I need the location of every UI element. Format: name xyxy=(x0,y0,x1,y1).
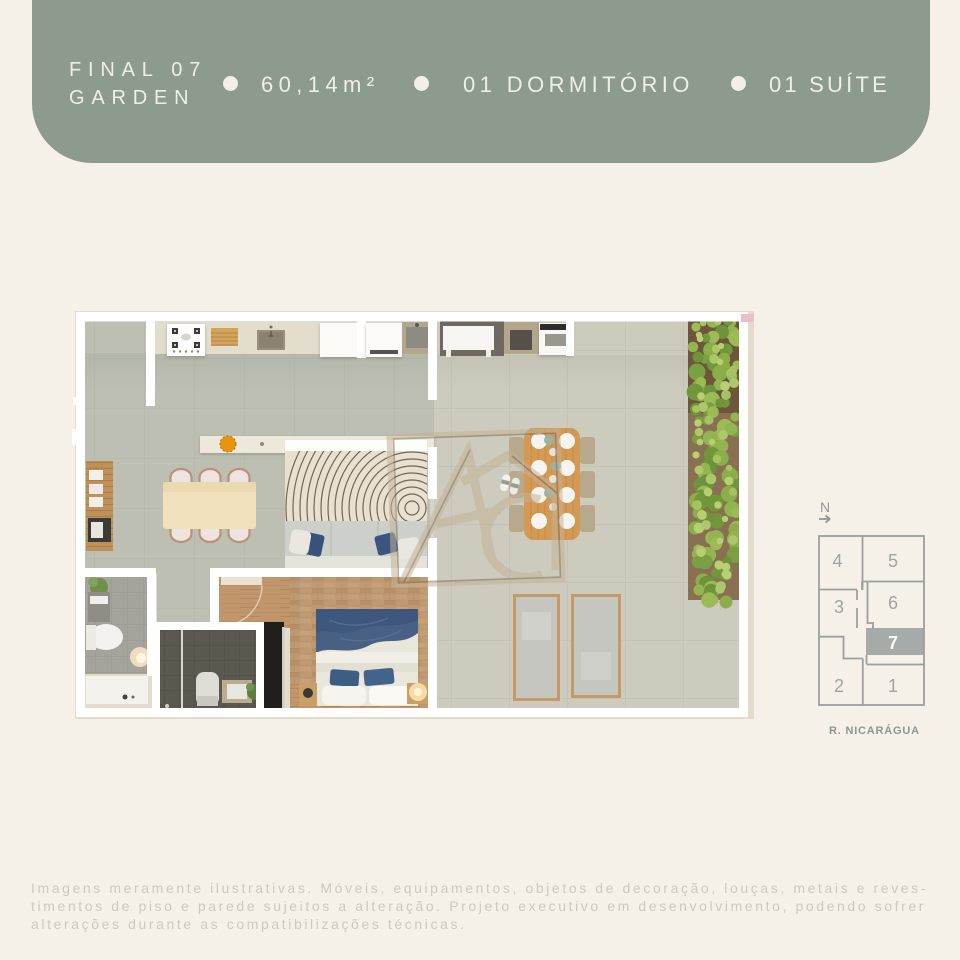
svg-text:6: 6 xyxy=(888,593,898,613)
svg-text:1: 1 xyxy=(888,676,898,696)
svg-text:5: 5 xyxy=(888,551,898,571)
svg-text:2: 2 xyxy=(834,676,844,696)
svg-text:4: 4 xyxy=(832,551,842,571)
svg-text:3: 3 xyxy=(834,597,844,617)
svg-text:R. NICARÁGUA: R. NICARÁGUA xyxy=(829,724,920,737)
svg-text:N: N xyxy=(820,499,830,515)
svg-text:7: 7 xyxy=(888,633,898,653)
